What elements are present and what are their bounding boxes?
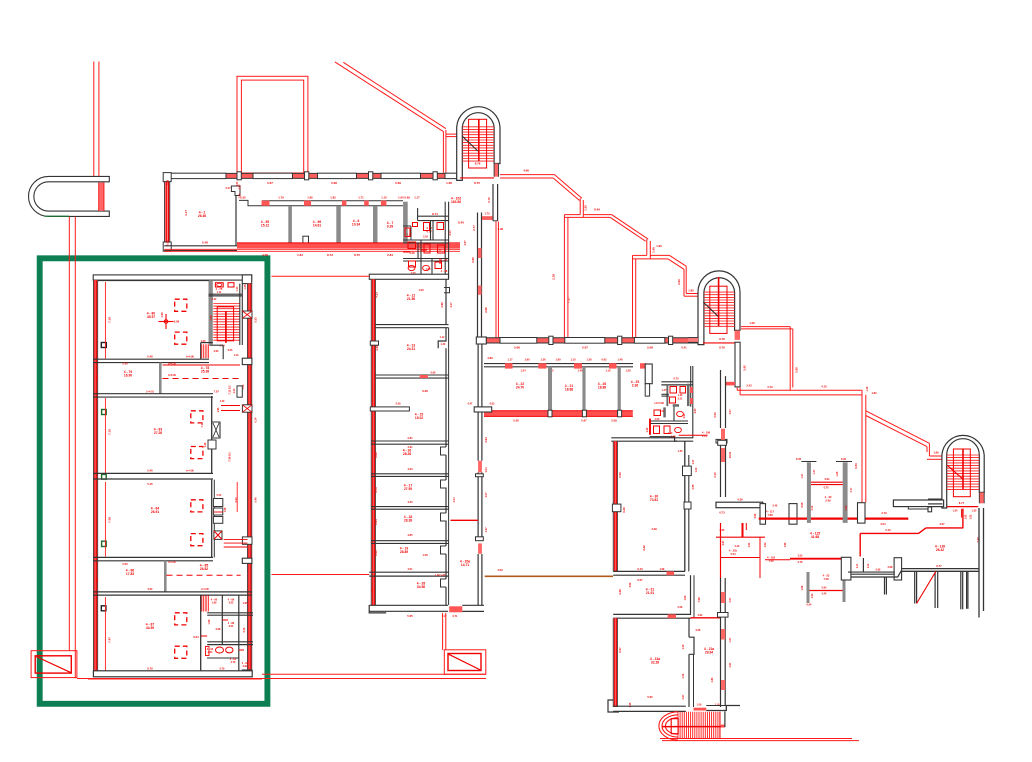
svg-text:5.65: 5.65 — [647, 695, 653, 699]
svg-text:1.89: 1.89 — [933, 451, 939, 455]
svg-text:3.43: 3.43 — [746, 384, 752, 388]
svg-text:18.88: 18.88 — [565, 388, 573, 392]
svg-text:3.12: 3.12 — [811, 505, 814, 510]
svg-text:1.48: 1.48 — [652, 247, 656, 253]
svg-text:7.11 8.2: 7.11 8.2 — [228, 385, 232, 395]
svg-text:1.17: 1.17 — [507, 357, 513, 361]
svg-text:27.26: 27.26 — [154, 431, 162, 435]
svg-text:1.13: 1.13 — [233, 388, 236, 393]
svg-text:1.34: 1.34 — [953, 510, 958, 513]
svg-text:16.90: 16.90 — [124, 374, 132, 378]
svg-text:0.90: 0.90 — [431, 372, 436, 375]
svg-text:5.67: 5.67 — [582, 346, 588, 350]
svg-text:5.68: 5.68 — [331, 181, 337, 185]
svg-text:2.57: 2.57 — [463, 240, 467, 246]
svg-text:4.31: 4.31 — [407, 436, 413, 440]
svg-text:1.65: 1.65 — [425, 267, 431, 271]
svg-text:5.03: 5.03 — [713, 412, 717, 418]
svg-text:1.10: 1.10 — [605, 369, 611, 373]
svg-text:1.71: 1.71 — [358, 195, 364, 199]
svg-text:1.12: 1.12 — [440, 336, 445, 339]
svg-text:4.61: 4.61 — [729, 662, 732, 667]
svg-text:5.88: 5.88 — [795, 367, 799, 373]
svg-text:b=4.90: b=4.90 — [186, 470, 194, 473]
svg-text:1.05: 1.05 — [238, 193, 242, 199]
svg-text:15.12: 15.12 — [261, 224, 269, 228]
svg-text:2.70: 2.70 — [231, 661, 236, 664]
svg-text:3.17: 3.17 — [850, 487, 853, 492]
svg-text:4.29: 4.29 — [651, 527, 657, 531]
svg-text:7.08: 7.08 — [224, 507, 227, 512]
svg-text:1.87: 1.87 — [407, 234, 412, 237]
svg-text:0.47: 0.47 — [225, 186, 231, 190]
svg-text:2.52: 2.52 — [629, 582, 632, 587]
svg-text:1.17: 1.17 — [484, 527, 488, 533]
svg-text:0.29: 0.29 — [735, 545, 740, 548]
svg-text:1.98: 1.98 — [660, 568, 665, 571]
svg-text:8.77: 8.77 — [959, 501, 965, 505]
svg-text:16.61: 16.61 — [728, 451, 732, 458]
svg-text:1.34: 1.34 — [811, 593, 814, 598]
svg-text:9.53: 9.53 — [854, 463, 858, 469]
svg-text:5.46: 5.46 — [254, 497, 258, 503]
svg-text:2.36: 2.36 — [632, 384, 639, 388]
svg-text:9.64: 9.64 — [193, 635, 199, 639]
svg-text:5.05: 5.05 — [228, 349, 233, 352]
svg-text:0.90: 0.90 — [166, 240, 170, 246]
svg-text:8.78: 8.78 — [719, 346, 725, 350]
svg-text:1.64 0.69: 1.64 0.69 — [398, 195, 410, 199]
svg-text:0.40: 0.40 — [822, 593, 827, 596]
svg-text:1.04: 1.04 — [764, 542, 767, 547]
svg-text:4.30: 4.30 — [682, 673, 685, 678]
svg-text:0.94: 0.94 — [822, 586, 827, 589]
svg-text:7.98: 7.98 — [697, 597, 701, 603]
svg-text:b=4.00: b=4.00 — [168, 561, 176, 564]
svg-text:5.15: 5.15 — [713, 472, 717, 478]
svg-text:8.78: 8.78 — [475, 162, 481, 166]
svg-text:5.46: 5.46 — [147, 469, 153, 473]
svg-text:1.90: 1.90 — [498, 227, 504, 231]
svg-text:3.42: 3.42 — [642, 545, 646, 551]
svg-text:2.87: 2.87 — [238, 184, 242, 190]
svg-text:6.57: 6.57 — [637, 578, 643, 582]
svg-text:4.83: 4.83 — [487, 356, 493, 360]
svg-text:4 - 106: 4 - 106 — [702, 431, 711, 435]
svg-text:0.90: 0.90 — [754, 513, 757, 518]
svg-text:0.71: 0.71 — [453, 615, 458, 618]
svg-text:3.09: 3.09 — [497, 568, 503, 572]
svg-text:2.52: 2.52 — [798, 554, 803, 557]
svg-text:b=6.00: b=6.00 — [168, 374, 176, 377]
svg-text:4.30: 4.30 — [407, 467, 413, 471]
svg-text:1.93: 1.93 — [584, 205, 588, 211]
svg-text:0.70: 0.70 — [824, 487, 829, 490]
svg-text:1.79: 1.79 — [278, 195, 284, 199]
svg-text:9.28: 9.28 — [422, 389, 428, 393]
svg-text:1.02: 1.02 — [965, 514, 968, 519]
svg-text:0.52: 0.52 — [217, 494, 222, 497]
svg-text:1.07: 1.07 — [728, 409, 732, 415]
svg-text:26.91: 26.91 — [151, 510, 159, 514]
svg-text:1.07: 1.07 — [484, 492, 488, 498]
svg-text:5.67: 5.67 — [581, 418, 587, 422]
svg-text:1.47: 1.47 — [813, 469, 816, 474]
svg-text:1.24: 1.24 — [520, 369, 526, 373]
svg-text:1.11: 1.11 — [217, 290, 222, 294]
svg-text:1.96: 1.96 — [217, 407, 220, 412]
svg-text:1.90: 1.90 — [656, 244, 662, 248]
svg-text:1.46: 1.46 — [204, 442, 207, 447]
svg-text:7.08: 7.08 — [108, 517, 112, 523]
svg-text:24.70: 24.70 — [516, 386, 524, 390]
svg-text:4.17: 4.17 — [184, 210, 188, 216]
svg-text:0.62: 0.62 — [601, 357, 607, 361]
svg-text:1.09: 1.09 — [697, 704, 702, 707]
svg-text:1.36: 1.36 — [586, 357, 592, 361]
svg-text:7.88: 7.88 — [767, 513, 773, 517]
svg-text:2.01: 2.01 — [229, 625, 234, 628]
svg-text:1.30: 1.30 — [682, 644, 685, 649]
svg-text:0.94: 0.94 — [807, 604, 812, 607]
svg-text:9.46: 9.46 — [622, 507, 626, 513]
svg-text:2.08: 2.08 — [374, 550, 378, 556]
svg-text:5.45: 5.45 — [147, 482, 153, 486]
svg-text:1.10 0.88: 1.10 0.88 — [654, 403, 664, 405]
svg-text:0.79: 0.79 — [220, 668, 225, 671]
svg-text:0.68: 0.68 — [876, 569, 881, 572]
svg-text:1.32: 1.32 — [646, 427, 649, 432]
svg-text:1.35: 1.35 — [972, 510, 977, 513]
svg-text:3.03: 3.03 — [95, 375, 99, 381]
svg-text:2.28: 2.28 — [552, 274, 556, 280]
svg-text:9.28: 9.28 — [387, 225, 394, 229]
svg-text:9.07: 9.07 — [618, 647, 622, 653]
svg-text:5.65: 5.65 — [407, 614, 413, 618]
svg-text:4.01: 4.01 — [407, 567, 413, 571]
svg-text:1.47: 1.47 — [801, 473, 804, 478]
svg-text:3.07: 3.07 — [729, 597, 732, 602]
svg-text:1.36: 1.36 — [540, 357, 546, 361]
svg-text:2.87: 2.87 — [722, 540, 725, 545]
svg-text:4.96: 4.96 — [523, 168, 529, 172]
svg-text:5.56: 5.56 — [513, 418, 519, 422]
svg-text:2.36: 2.36 — [395, 402, 401, 406]
svg-text:2.88: 2.88 — [440, 302, 444, 308]
svg-text:45.97: 45.97 — [147, 315, 155, 319]
svg-text:2.58: 2.58 — [209, 315, 213, 321]
svg-text:1.46: 1.46 — [617, 357, 623, 361]
svg-text:1.07: 1.07 — [729, 637, 732, 642]
svg-text:4.94: 4.94 — [484, 437, 488, 443]
svg-text:1.80: 1.80 — [688, 289, 694, 293]
svg-text:10.34: 10.34 — [352, 223, 360, 227]
svg-text:4 - 97: 4 - 97 — [441, 258, 448, 262]
svg-text:2.63: 2.63 — [677, 279, 681, 285]
svg-text:7.27: 7.27 — [567, 297, 571, 303]
svg-text:3.44: 3.44 — [448, 230, 452, 236]
svg-text:8.79: 8.79 — [147, 666, 153, 670]
svg-text:1.40: 1.40 — [220, 400, 225, 403]
svg-text:2.77: 2.77 — [472, 225, 476, 231]
svg-text:5.68: 5.68 — [647, 346, 653, 350]
svg-text:5.53: 5.53 — [254, 317, 258, 323]
svg-text:5.67: 5.67 — [267, 181, 273, 185]
svg-text:8.77: 8.77 — [936, 564, 942, 568]
svg-text:8.75: 8.75 — [354, 253, 360, 257]
svg-text:1.30: 1.30 — [441, 343, 446, 346]
svg-text:4.07: 4.07 — [682, 694, 685, 699]
svg-text:0.68: 0.68 — [678, 606, 683, 609]
svg-text:5.66: 5.66 — [514, 346, 520, 350]
svg-text:3.67: 3.67 — [939, 522, 945, 526]
svg-text:8.73: 8.73 — [374, 487, 378, 493]
svg-text:7.28: 7.28 — [823, 577, 829, 581]
svg-text:1.06: 1.06 — [836, 471, 839, 476]
svg-text:25.38: 25.38 — [201, 370, 209, 374]
svg-text:1.40: 1.40 — [856, 563, 859, 568]
svg-text:34.56: 34.56 — [417, 585, 425, 589]
svg-text:28.38: 28.38 — [404, 519, 412, 523]
svg-text:0.79: 0.79 — [767, 385, 773, 389]
svg-text:1.70: 1.70 — [484, 212, 490, 216]
svg-text:1.13: 1.13 — [234, 354, 239, 357]
svg-text:1.47: 1.47 — [662, 389, 667, 392]
svg-text:32.28: 32.28 — [651, 661, 659, 665]
svg-text:5.00: 5.00 — [148, 588, 153, 591]
svg-text:41.68: 41.68 — [811, 535, 819, 539]
svg-text:4.30: 4.30 — [407, 500, 413, 504]
svg-text:29.84: 29.84 — [705, 651, 713, 655]
svg-text:7.58 8.2: 7.58 8.2 — [228, 452, 232, 462]
svg-text:4.85: 4.85 — [407, 533, 413, 537]
svg-text:6.35: 6.35 — [796, 457, 802, 461]
svg-text:0.68: 0.68 — [888, 566, 893, 569]
svg-text:1.46: 1.46 — [577, 369, 583, 373]
svg-text:6.43: 6.43 — [637, 567, 643, 571]
svg-text:0.85: 0.85 — [720, 529, 725, 532]
svg-text:1.43: 1.43 — [867, 563, 870, 568]
svg-text:1.90: 1.90 — [524, 357, 530, 361]
svg-text:1.43: 1.43 — [236, 286, 239, 291]
svg-text:1.46: 1.46 — [866, 386, 869, 391]
svg-text:17.83: 17.83 — [126, 572, 134, 576]
svg-text:3.79: 3.79 — [881, 511, 887, 515]
svg-text:44.59: 44.59 — [146, 626, 154, 630]
svg-text:1.71: 1.71 — [436, 248, 442, 252]
svg-text:1.60: 1.60 — [668, 432, 673, 435]
svg-text:5.00: 5.00 — [122, 562, 128, 566]
svg-text:1.08: 1.08 — [446, 181, 452, 185]
svg-text:0.98: 0.98 — [216, 628, 221, 631]
svg-text:1.95: 1.95 — [160, 312, 164, 318]
svg-text:1.65: 1.65 — [244, 284, 247, 289]
svg-text:21.56: 21.56 — [407, 297, 415, 301]
svg-text:1.61: 1.61 — [748, 542, 751, 547]
svg-text:5.24: 5.24 — [730, 552, 736, 556]
svg-text:4.03: 4.03 — [694, 408, 697, 413]
svg-text:1.95: 1.95 — [243, 602, 248, 605]
svg-text:1=4.01: 1=4.01 — [146, 391, 154, 394]
svg-text:2.42: 2.42 — [212, 298, 217, 301]
svg-text:26.46: 26.46 — [198, 214, 206, 218]
svg-text:7.15: 7.15 — [108, 429, 112, 435]
svg-text:1.84: 1.84 — [297, 253, 303, 257]
svg-text:1.11: 1.11 — [702, 434, 707, 438]
svg-text:2.95: 2.95 — [214, 350, 219, 353]
svg-text:1.17: 1.17 — [414, 195, 420, 199]
svg-text:2.88: 2.88 — [374, 452, 378, 458]
svg-text:7.11: 7.11 — [200, 422, 204, 427]
svg-text:0.94: 0.94 — [825, 478, 830, 481]
svg-text:8.73: 8.73 — [327, 253, 333, 257]
svg-text:3.04: 3.04 — [880, 522, 886, 526]
svg-text:73.81: 73.81 — [650, 498, 658, 502]
svg-text:3.06: 3.06 — [174, 320, 180, 324]
svg-text:1.95: 1.95 — [801, 585, 804, 590]
svg-text:2.55: 2.55 — [692, 484, 695, 489]
svg-text:0.92: 0.92 — [683, 413, 686, 418]
svg-text:4 - 98: 4 - 98 — [441, 269, 448, 273]
svg-text:b=4.00: b=4.00 — [201, 588, 209, 591]
svg-text:2.08: 2.08 — [611, 418, 617, 422]
svg-text:5.36: 5.36 — [122, 362, 128, 366]
svg-text:18.88: 18.88 — [598, 386, 606, 390]
svg-text:3.11: 3.11 — [370, 587, 374, 593]
svg-text:1.08: 1.08 — [749, 321, 755, 325]
svg-text:2.66: 2.66 — [471, 257, 475, 263]
svg-text:1.17: 1.17 — [692, 459, 695, 464]
svg-text:0.68: 0.68 — [696, 629, 701, 632]
svg-text:8.49: 8.49 — [594, 208, 600, 212]
svg-text:0.76: 0.76 — [798, 561, 803, 564]
svg-text:3.48: 3.48 — [618, 589, 622, 595]
svg-text:7.19: 7.19 — [108, 317, 112, 323]
svg-text:3.03: 3.03 — [95, 577, 99, 583]
svg-text:0.41: 0.41 — [681, 346, 687, 350]
svg-text:1.99: 1.99 — [212, 602, 217, 605]
svg-text:1.10: 1.10 — [570, 357, 576, 361]
svg-text:8.78: 8.78 — [719, 337, 725, 341]
svg-text:5.46: 5.46 — [147, 355, 153, 359]
svg-text:7.07: 7.07 — [214, 390, 220, 394]
svg-text:2.84: 2.84 — [374, 519, 378, 525]
svg-text:2.64: 2.64 — [208, 651, 213, 654]
svg-text:2.00: 2.00 — [655, 418, 660, 421]
svg-text:5.59: 5.59 — [618, 472, 622, 478]
svg-text:1.50: 1.50 — [208, 619, 211, 624]
svg-text:2.36: 2.36 — [243, 627, 246, 632]
svg-text:2.44: 2.44 — [452, 497, 456, 503]
svg-text:27.59: 27.59 — [404, 487, 412, 491]
svg-text:1.50: 1.50 — [684, 595, 687, 600]
svg-text:5.70: 5.70 — [487, 197, 491, 203]
svg-text:6.73: 6.73 — [719, 511, 725, 515]
svg-text:4.31: 4.31 — [407, 445, 413, 449]
svg-text:0.98: 0.98 — [166, 179, 170, 185]
svg-text:0.47: 0.47 — [468, 403, 473, 406]
svg-text:1.69: 1.69 — [555, 357, 561, 361]
svg-text:4.10: 4.10 — [821, 385, 827, 389]
svg-text:14.61: 14.61 — [313, 224, 321, 228]
svg-text:2.69: 2.69 — [825, 498, 831, 502]
svg-text:5.08: 5.08 — [801, 502, 804, 507]
svg-text:3.17: 3.17 — [449, 302, 453, 308]
svg-text:14.71: 14.71 — [461, 563, 469, 567]
svg-text:2.08: 2.08 — [409, 251, 415, 255]
svg-text:2.00: 2.00 — [660, 410, 665, 413]
svg-text:0.34: 0.34 — [255, 417, 258, 422]
svg-text:b=4.90: b=4.90 — [186, 356, 194, 359]
svg-text:1.26: 1.26 — [625, 369, 631, 373]
svg-text:15.02: 15.02 — [415, 416, 423, 420]
svg-text:1.80: 1.80 — [871, 391, 877, 395]
svg-text:28.28: 28.28 — [403, 452, 411, 456]
svg-text:2.84: 2.84 — [387, 253, 393, 257]
svg-text:1.04: 1.04 — [484, 467, 488, 473]
svg-text:3.55: 3.55 — [229, 602, 234, 605]
svg-text:26.82: 26.82 — [200, 567, 208, 571]
svg-text:24.31: 24.31 — [407, 347, 415, 351]
svg-text:7.47: 7.47 — [108, 637, 112, 643]
svg-text:0.46: 0.46 — [773, 505, 778, 508]
svg-text:2.92: 2.92 — [243, 665, 248, 668]
svg-text:1.45: 1.45 — [678, 450, 683, 453]
svg-text:3.92: 3.92 — [743, 365, 747, 371]
svg-text:5.46: 5.46 — [202, 241, 208, 245]
svg-text:3.40: 3.40 — [845, 505, 848, 510]
svg-text:4.81: 4.81 — [710, 677, 714, 683]
svg-text:163.56: 163.56 — [451, 200, 461, 204]
svg-text:28.89: 28.89 — [400, 550, 408, 554]
svg-text:1.85: 1.85 — [307, 195, 313, 199]
svg-text:1.92: 1.92 — [970, 514, 973, 519]
svg-text:4 - 32: 4 - 32 — [825, 495, 832, 499]
svg-text:1.82: 1.82 — [330, 195, 336, 199]
svg-text:1.90 1.28: 1.90 1.28 — [435, 574, 446, 577]
svg-text:8.74: 8.74 — [432, 212, 438, 216]
svg-text:1.09: 1.09 — [418, 288, 424, 292]
svg-text:1.13: 1.13 — [695, 467, 698, 472]
svg-text:0.03: 0.03 — [490, 403, 495, 406]
svg-text:5.19: 5.19 — [885, 528, 891, 532]
svg-text:2.66: 2.66 — [484, 307, 488, 313]
svg-text:2.32: 2.32 — [678, 397, 683, 400]
svg-text:1.86: 1.86 — [784, 542, 787, 547]
svg-text:2.02: 2.02 — [423, 236, 428, 239]
svg-text:6.35: 6.35 — [841, 457, 847, 461]
svg-text:21.91: 21.91 — [646, 591, 654, 595]
svg-text:4.58: 4.58 — [262, 253, 268, 257]
svg-text:1.10: 1.10 — [381, 195, 387, 199]
svg-text:8.75: 8.75 — [474, 181, 480, 185]
svg-text:26.42: 26.42 — [936, 548, 944, 552]
svg-text:8.40: 8.40 — [458, 221, 464, 225]
svg-text:4.36: 4.36 — [737, 498, 743, 502]
svg-text:1.28: 1.28 — [422, 553, 428, 557]
svg-text:5.69: 5.69 — [395, 181, 401, 185]
svg-text:0.75: 0.75 — [673, 377, 679, 381]
svg-text:0.90: 0.90 — [698, 614, 703, 617]
svg-text:1.60: 1.60 — [201, 340, 206, 343]
